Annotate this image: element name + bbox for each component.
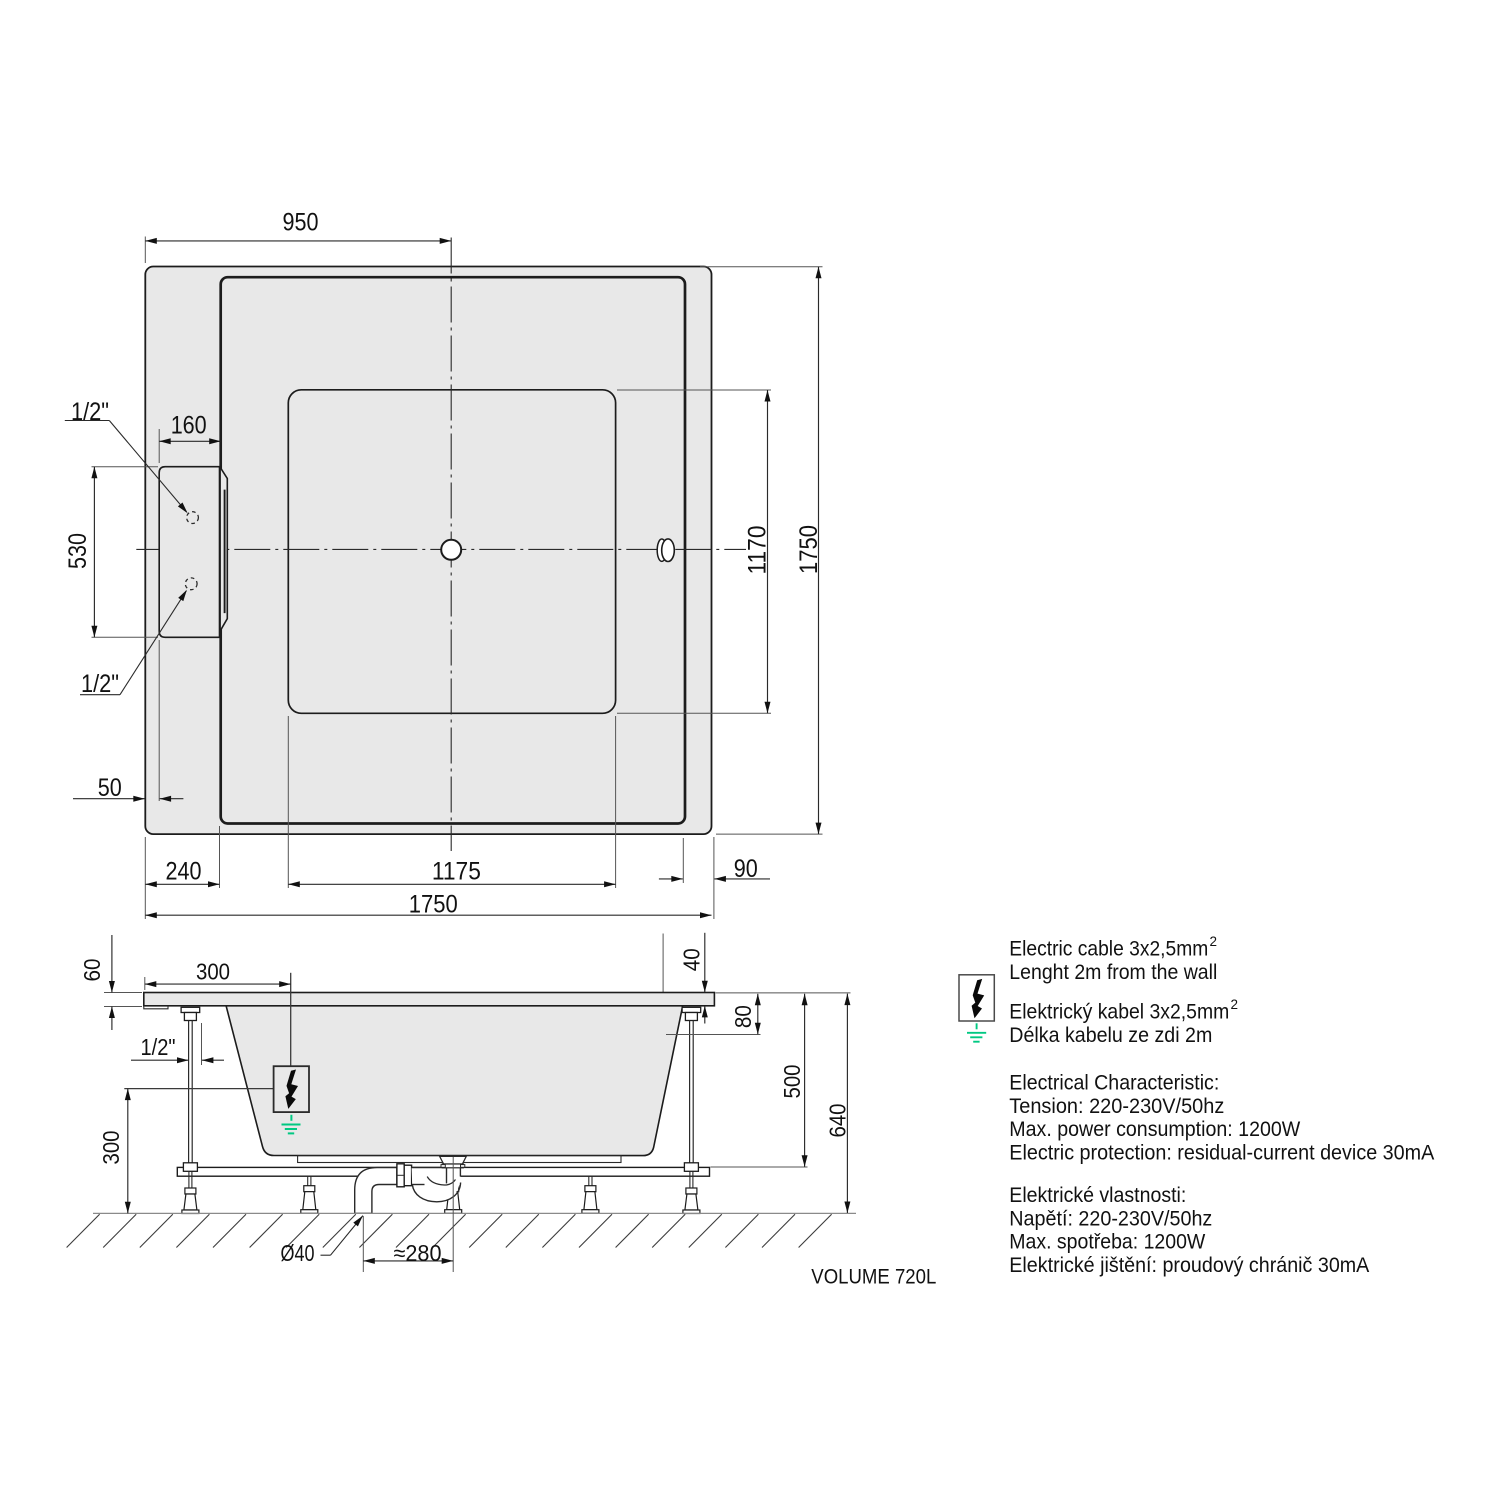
- svg-text:60: 60: [79, 959, 105, 982]
- svg-text:500: 500: [779, 1065, 805, 1099]
- svg-text:240: 240: [166, 858, 202, 886]
- svg-text:Max. power consumption: 1200W: Max. power consumption: 1200W: [1009, 1118, 1300, 1141]
- svg-text:Tension: 220-230V/50hz: Tension: 220-230V/50hz: [1009, 1095, 1224, 1118]
- svg-text:90: 90: [734, 855, 758, 883]
- svg-text:80: 80: [730, 1005, 756, 1028]
- svg-text:530: 530: [64, 533, 92, 569]
- svg-text:Délka kabelu ze zdi 2m: Délka kabelu ze zdi 2m: [1009, 1024, 1212, 1047]
- svg-text:1/2": 1/2": [141, 1034, 176, 1060]
- svg-text:300: 300: [98, 1131, 124, 1165]
- svg-text:50: 50: [98, 774, 122, 802]
- svg-text:2: 2: [1231, 997, 1239, 1012]
- svg-text:Elektrický kabel 3x2,5mm: Elektrický kabel 3x2,5mm: [1009, 1000, 1229, 1023]
- svg-text:1/2": 1/2": [71, 398, 109, 426]
- svg-text:Napětí: 220-230V/50hz: Napětí: 220-230V/50hz: [1009, 1207, 1212, 1230]
- svg-text:1/2": 1/2": [81, 670, 119, 698]
- svg-text:Electric protection: residual-: Electric protection: residual-current de…: [1009, 1142, 1434, 1165]
- svg-text:Lenght 2m from the wall: Lenght 2m from the wall: [1009, 961, 1217, 984]
- svg-text:Ø40: Ø40: [281, 1240, 315, 1266]
- svg-text:160: 160: [171, 412, 207, 440]
- svg-text:40: 40: [679, 948, 705, 971]
- svg-text:Electric cable 3x2,5mm: Electric cable 3x2,5mm: [1009, 938, 1208, 961]
- svg-text:2: 2: [1210, 934, 1218, 949]
- svg-text:1750: 1750: [795, 525, 823, 574]
- svg-text:Elektrické vlastnosti:: Elektrické vlastnosti:: [1009, 1184, 1186, 1207]
- svg-text:950: 950: [283, 209, 319, 237]
- svg-text:Electrical Characteristic:: Electrical Characteristic:: [1009, 1071, 1219, 1094]
- svg-text:640: 640: [825, 1104, 851, 1138]
- svg-text:1175: 1175: [432, 857, 481, 885]
- svg-text:300: 300: [196, 958, 230, 984]
- svg-text:Max. spotřeba: 1200W: Max. spotřeba: 1200W: [1009, 1231, 1205, 1254]
- svg-text:VOLUME 720L: VOLUME 720L: [811, 1264, 936, 1288]
- svg-text:1750: 1750: [409, 890, 458, 918]
- svg-text:Elektrické jištění: proudový c: Elektrické jištění: proudový chránič 30m…: [1009, 1254, 1369, 1277]
- svg-text:≈280: ≈280: [394, 1240, 442, 1266]
- svg-text:1170: 1170: [744, 526, 772, 575]
